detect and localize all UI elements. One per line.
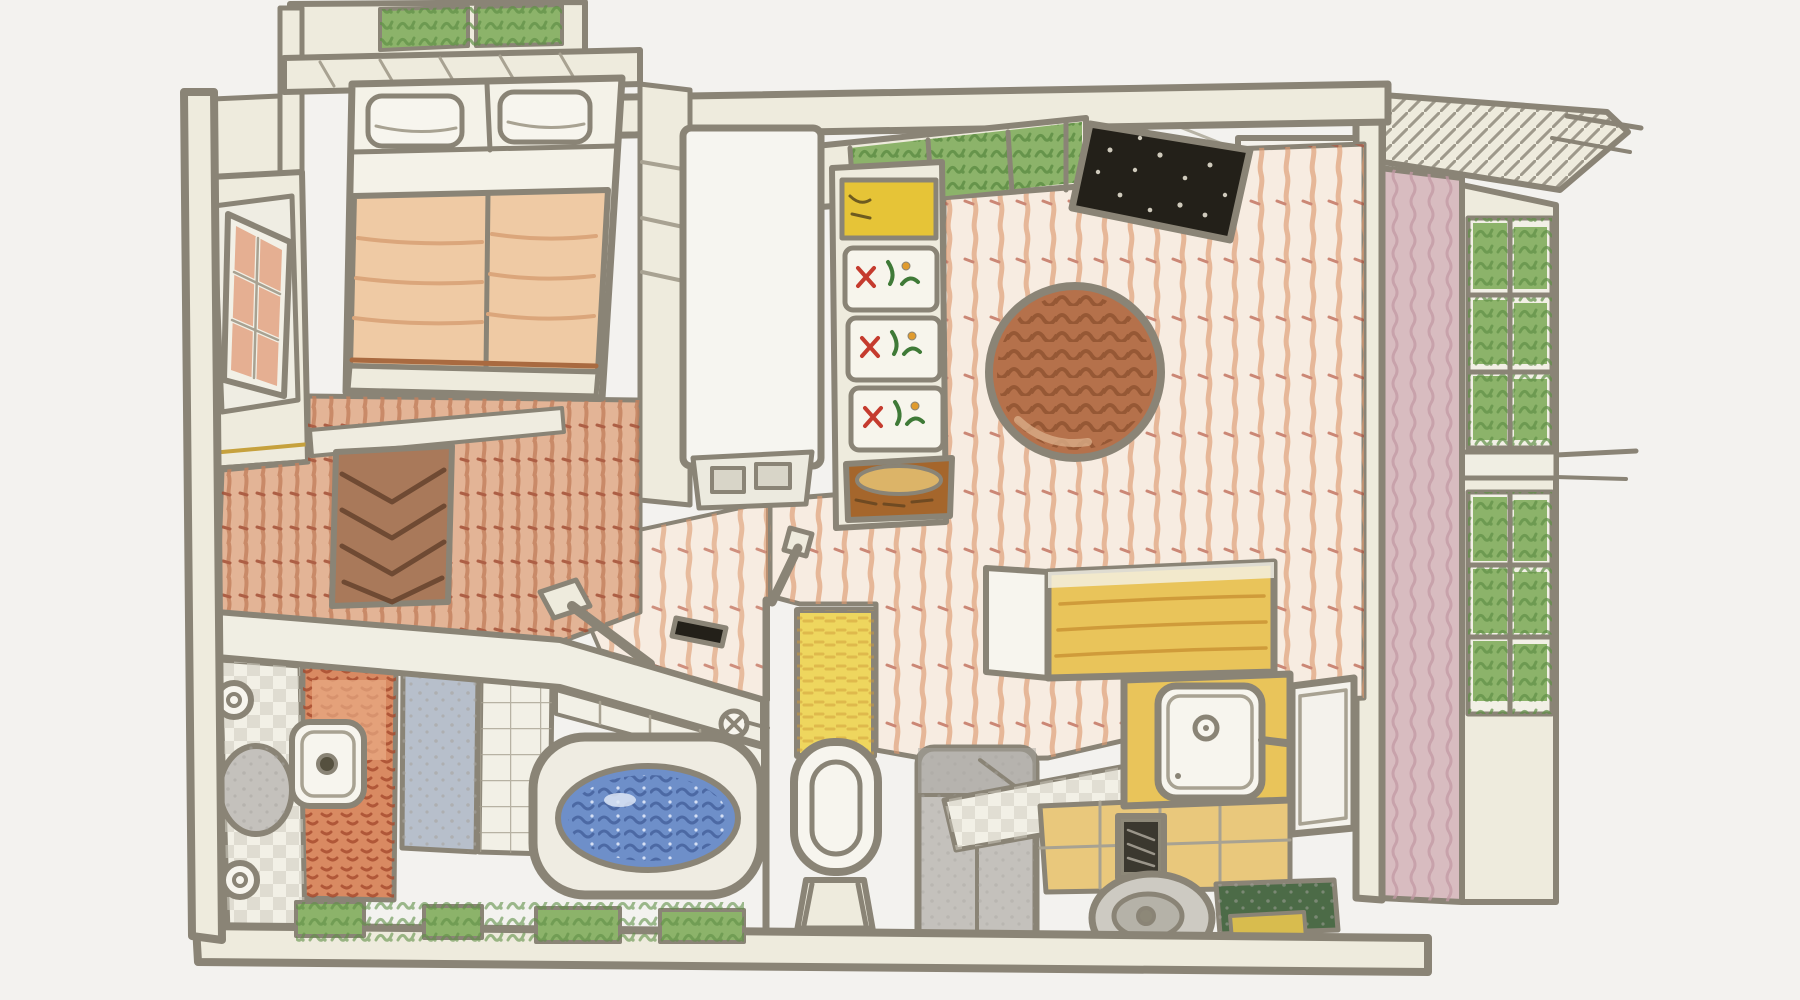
pink-column-texture [1380,168,1462,902]
blue-gray-texture [402,670,478,852]
drip-mark [1175,773,1181,779]
double-bed [346,78,622,398]
open-window [214,196,298,412]
drain-hole [1203,725,1209,731]
plant-window-lower [1468,492,1552,714]
water-texture [568,775,728,861]
blanket-seam [486,193,488,370]
sink-counter [1124,674,1312,806]
flower-box-shelf [832,162,952,528]
pillow [500,92,590,142]
herringbone-dresser [332,446,452,606]
vent-slot [756,464,790,488]
floral-box [848,318,940,380]
white-sink-basin [1158,686,1262,798]
vent-slot [712,468,744,492]
yellow-storage-box [842,180,936,238]
sofa-texture [920,750,1034,956]
vacuum-center [1138,908,1154,924]
window-sill [1462,452,1556,478]
cabinet-body [683,128,821,466]
gray-fixture-texture [220,746,292,834]
pillow-divider [487,84,490,150]
floral-box [845,248,937,310]
floating-yellow-counter [986,562,1274,678]
water-glint [604,793,636,807]
cistern-hole [318,755,336,773]
tall-white-cabinet [683,128,821,508]
woven-basket [846,458,952,520]
left-post [280,8,302,182]
skylight-texture [380,5,562,50]
plant-window-upper [1468,218,1552,448]
photographed-pencil-drawing [0,0,1800,1000]
plant-texture [296,902,744,944]
floor-plan-sketch [0,0,1800,1000]
gray-sofa [918,748,1036,958]
protruding-ledge-line [1556,477,1626,479]
bottom-plant-windows [296,902,744,944]
counter-end-panel [986,568,1048,678]
floral-box [851,388,943,450]
yellow-wall-texture [797,610,874,756]
bathtub [533,711,768,895]
left-outer-wall [184,92,222,940]
window-panel [1292,678,1354,834]
pillow [368,96,462,146]
round-fixture [223,863,257,897]
foot-rail [348,366,598,396]
